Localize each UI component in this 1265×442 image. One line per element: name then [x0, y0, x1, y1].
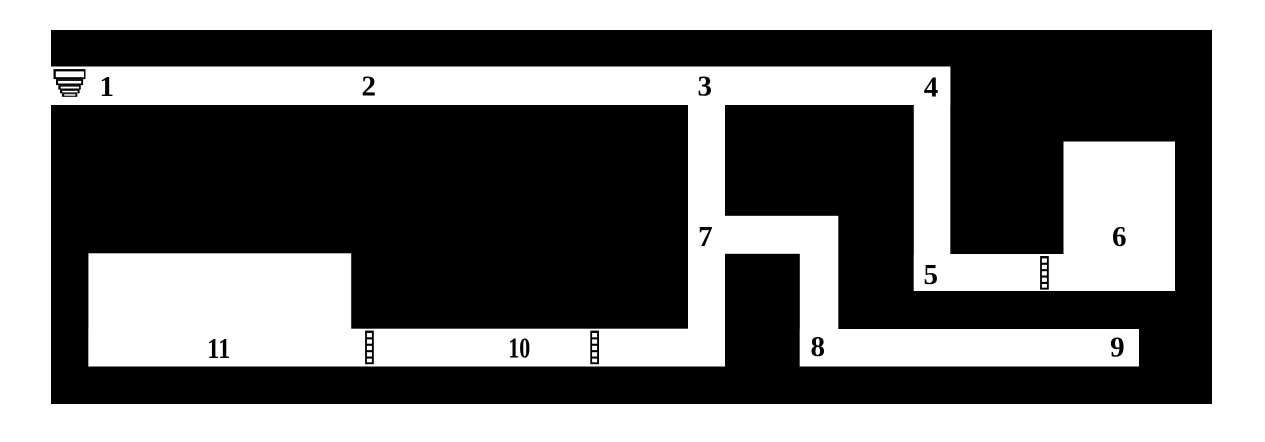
svg-text:7: 7: [698, 221, 713, 253]
svg-text:2: 2: [361, 71, 376, 103]
svg-text:8: 8: [810, 331, 825, 363]
svg-text:11: 11: [207, 333, 230, 365]
svg-text:3: 3: [698, 71, 713, 103]
svg-text:6: 6: [1112, 221, 1127, 253]
svg-text:1: 1: [99, 71, 114, 103]
svg-text:9: 9: [1110, 332, 1125, 364]
svg-text:10: 10: [508, 333, 530, 365]
svg-text:5: 5: [923, 259, 938, 291]
svg-text:4: 4: [924, 72, 939, 104]
